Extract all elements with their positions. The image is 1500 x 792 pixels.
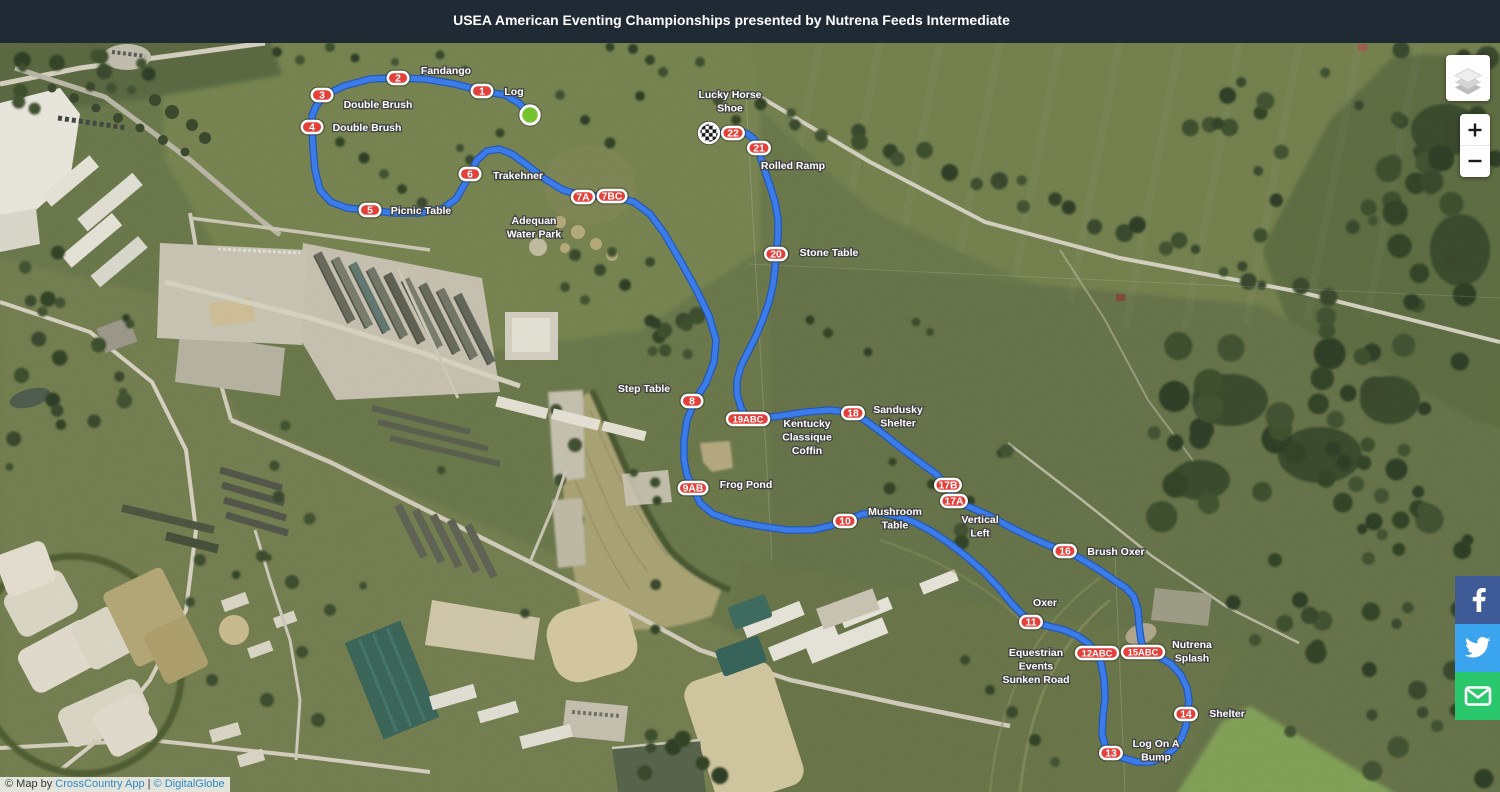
svg-text:1: 1 [479,87,485,98]
svg-text:Log On A: Log On A [1133,738,1180,750]
svg-text:Mushroom: Mushroom [868,506,922,518]
svg-text:Double Brush: Double Brush [333,122,402,134]
svg-text:11: 11 [1026,618,1037,629]
svg-text:20: 20 [770,250,782,261]
svg-text:Fandango: Fandango [421,65,471,77]
svg-text:Shoe: Shoe [717,103,743,115]
svg-text:14: 14 [1180,710,1192,721]
svg-text:9AB: 9AB [683,484,704,495]
svg-text:Brush Oxer: Brush Oxer [1087,546,1144,558]
svg-text:Log: Log [504,86,523,98]
svg-text:Left: Left [970,528,990,540]
svg-text:17A: 17A [944,497,964,508]
svg-text:6: 6 [467,170,473,181]
svg-text:13: 13 [1105,749,1117,760]
svg-text:19ABC: 19ABC [733,414,764,425]
svg-text:Bump: Bump [1141,752,1171,764]
svg-text:2: 2 [395,74,401,85]
svg-text:Picnic Table: Picnic Table [391,205,452,217]
svg-text:Events: Events [1019,661,1054,673]
svg-text:5: 5 [367,206,373,217]
svg-text:Kentucky: Kentucky [783,418,830,430]
svg-text:Rolled Ramp: Rolled Ramp [761,160,825,172]
svg-text:21: 21 [753,144,765,155]
svg-text:22: 22 [727,129,739,140]
svg-text:Equestrian: Equestrian [1009,647,1063,659]
svg-text:Trakehner: Trakehner [493,170,543,182]
svg-text:17B: 17B [938,481,958,492]
svg-text:Sandusky: Sandusky [873,404,923,416]
svg-text:8: 8 [689,397,695,408]
svg-text:Shelter: Shelter [1209,708,1245,720]
svg-text:Step Table: Step Table [618,383,670,395]
svg-text:18: 18 [847,409,859,420]
svg-text:Classique: Classique [782,432,832,444]
svg-text:12ABC: 12ABC [1082,648,1113,659]
svg-text:Lucky Horse: Lucky Horse [698,89,761,101]
svg-text:7BC: 7BC [602,192,623,203]
svg-text:16: 16 [1059,547,1071,558]
svg-text:Vertical: Vertical [961,514,998,526]
svg-text:15ABC: 15ABC [1128,647,1159,658]
svg-text:Coffin: Coffin [792,445,822,457]
svg-text:Frog Pond: Frog Pond [720,479,773,491]
svg-text:Sunken Road: Sunken Road [1002,674,1069,686]
svg-text:7A: 7A [576,193,590,204]
svg-text:10: 10 [839,517,851,528]
svg-text:Oxer: Oxer [1033,597,1057,609]
svg-text:Adequan: Adequan [512,215,557,227]
svg-text:3: 3 [319,91,325,102]
svg-text:Nutrena: Nutrena [1172,639,1212,651]
svg-text:Water Park: Water Park [507,229,562,241]
svg-text:Shelter: Shelter [880,418,916,430]
svg-text:4: 4 [309,123,315,134]
svg-text:Table: Table [882,520,909,532]
svg-text:Double Brush: Double Brush [344,99,413,111]
svg-text:Splash: Splash [1175,653,1209,665]
svg-text:Stone Table: Stone Table [800,247,859,259]
